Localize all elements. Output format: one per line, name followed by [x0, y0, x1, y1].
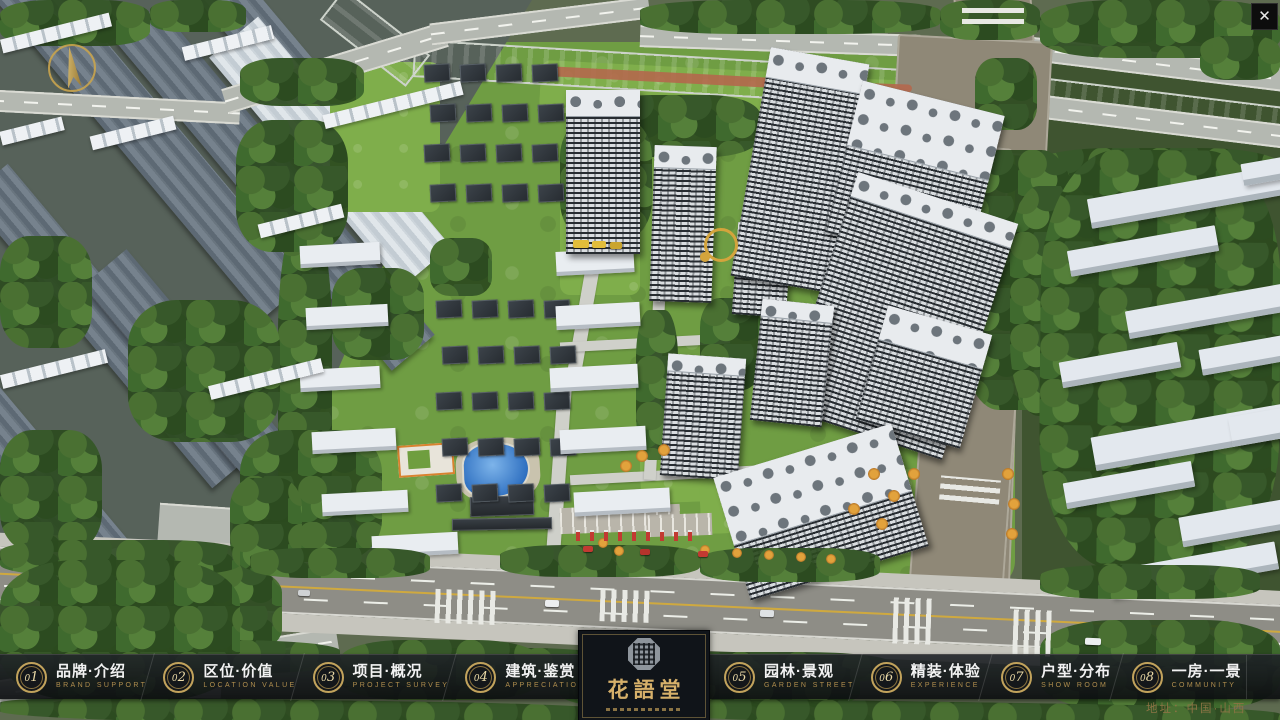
map-accent	[848, 503, 860, 515]
nav-group-right: 05 园林·景观GARDEN STREET 06 精装·体验EXPERIENCE…	[708, 655, 1280, 699]
map-tower	[649, 145, 716, 303]
nav-badge: 01	[16, 662, 47, 693]
map-tower	[566, 90, 640, 254]
map-court	[472, 391, 499, 410]
nav-badge: 03	[313, 662, 344, 693]
map-accent	[764, 550, 774, 560]
map-accent	[868, 468, 880, 480]
map-court	[436, 299, 463, 318]
map-grove	[150, 0, 246, 32]
map-court	[472, 299, 499, 318]
nav-subtitle: COMMUNITY	[1172, 682, 1242, 690]
nav-number: 03	[321, 671, 335, 684]
map-court	[478, 345, 505, 364]
nav-item-location-value[interactable]: 02 区位·价值LOCATION VALUE	[147, 655, 296, 699]
map-accent	[614, 546, 624, 556]
nav-badge: 08	[1132, 662, 1163, 693]
map-accent	[1002, 468, 1014, 480]
nav-item-room-view[interactable]: 08 一房·一景COMMUNITY	[1116, 655, 1246, 699]
map-grove2	[500, 545, 700, 577]
map-lowslab	[573, 488, 670, 517]
project-address: 地址：中国·山西	[1146, 700, 1246, 716]
map-car	[610, 242, 622, 249]
map-car	[583, 546, 593, 552]
map-flag	[646, 532, 650, 541]
map-accent	[658, 444, 670, 456]
map-car	[1085, 638, 1101, 646]
nav-badge: 07	[1001, 662, 1032, 693]
map-car	[760, 610, 774, 617]
map-court	[496, 63, 523, 82]
nav-title: 园林·景观	[764, 664, 855, 681]
map-car	[592, 241, 606, 248]
project-name-subtitle	[606, 708, 682, 711]
map-car	[640, 549, 650, 555]
map-accent	[636, 450, 648, 462]
map-grove	[0, 430, 102, 552]
map-car	[298, 590, 310, 596]
map-flag	[688, 532, 692, 541]
map-accent	[796, 552, 806, 562]
map-court	[550, 345, 577, 364]
nav-badge: 05	[724, 662, 755, 693]
map-court	[508, 483, 535, 502]
map-court	[544, 483, 571, 502]
nav-item-brand-intro[interactable]: 01 品牌·介绍BRAND SUPPORT	[0, 655, 147, 699]
map-court	[532, 143, 559, 162]
nav-group-left: 01 品牌·介绍BRAND SUPPORT 02 区位·价值LOCATION V…	[0, 655, 578, 699]
map-court	[442, 437, 469, 456]
map-lowslab	[321, 490, 408, 516]
map-court	[508, 299, 535, 318]
nav-subtitle: LOCATION VALUE	[203, 682, 296, 690]
map-court	[496, 143, 523, 162]
map-gatebldg	[452, 517, 552, 531]
nav-item-floorplan-distribution[interactable]: 07 户型·分布SHOW ROOM	[985, 655, 1115, 699]
map-zebra-v	[939, 475, 1001, 504]
nav-number: 04	[474, 671, 488, 684]
nav-badge: 04	[465, 662, 496, 693]
map-car	[545, 600, 559, 607]
project-logo-panel[interactable]: 花語堂	[578, 630, 710, 720]
map-flag	[632, 532, 636, 541]
nav-title: 精装·体验	[911, 664, 981, 681]
map-car	[698, 551, 708, 557]
map-zebra-h	[1012, 609, 1052, 656]
map-lowslab	[311, 428, 396, 454]
nav-title: 户型·分布	[1041, 664, 1111, 681]
map-accent	[1008, 498, 1020, 510]
map-grove2	[250, 548, 430, 578]
nav-subtitle: BRAND SUPPORT	[56, 682, 147, 690]
map-zebra-h	[599, 589, 650, 623]
map-court	[478, 437, 505, 456]
close-button[interactable]: ✕	[1251, 3, 1278, 30]
map-zebra-h	[434, 589, 499, 625]
map-accent	[888, 490, 900, 502]
map-lowslab	[555, 302, 640, 330]
map-grove2	[700, 548, 880, 582]
project-name: 花語堂	[603, 674, 686, 704]
map-court	[460, 143, 487, 162]
compass	[44, 40, 100, 96]
map-court	[514, 345, 541, 364]
map-flag	[660, 532, 664, 541]
map-accent	[620, 460, 632, 472]
map-court	[442, 345, 469, 364]
map-grove	[236, 120, 348, 252]
map-court	[532, 63, 559, 82]
presentation-stage: ✕ 01 品牌·介绍BRAND SUPPORT 02 区位·价值LOCATION…	[0, 0, 1280, 720]
map-zebra-h	[892, 597, 932, 644]
map-court	[430, 183, 457, 202]
map-flag	[674, 532, 678, 541]
map-court	[538, 103, 565, 122]
nav-number: 08	[1140, 671, 1154, 684]
map-lowslab	[305, 304, 388, 330]
map-tower-roof	[566, 90, 640, 117]
map-lowslab	[299, 242, 380, 268]
nav-badge: 02	[163, 662, 194, 693]
nav-title: 品牌·介绍	[56, 664, 147, 681]
map-grove2	[1040, 565, 1260, 599]
map-grove	[240, 58, 364, 106]
nav-number: 05	[732, 671, 746, 684]
nav-item-interior-experience[interactable]: 06 精装·体验EXPERIENCE	[855, 655, 985, 699]
nav-title: 一房·一景	[1172, 664, 1242, 681]
map-grove	[128, 300, 280, 442]
map-zebra-v	[962, 6, 1024, 24]
map-grove	[640, 0, 940, 34]
map-lowslab	[559, 426, 646, 454]
nav-title: 建筑·鉴赏	[505, 664, 585, 681]
map-tower-roof	[654, 145, 717, 170]
map-flag	[576, 532, 580, 541]
map-court	[472, 483, 499, 502]
map-golddot	[700, 252, 710, 262]
map-accent	[908, 468, 920, 480]
map-accent	[1006, 528, 1018, 540]
nav-tail	[1246, 655, 1280, 699]
map-court	[466, 103, 493, 122]
map-scene	[0, 0, 1280, 720]
map-court	[430, 103, 457, 122]
map-lowslab	[549, 364, 638, 393]
nav-subtitle: APPRECIATION	[505, 682, 585, 690]
map-court	[502, 183, 529, 202]
map-court	[436, 483, 463, 502]
nav-subtitle: PROJECT SURVEY	[353, 682, 450, 690]
nav-number: 02	[172, 671, 186, 684]
map-accent	[732, 548, 742, 558]
nav-item-project-survey[interactable]: 03 项目·概况PROJECT SURVEY	[297, 655, 450, 699]
nav-title: 区位·价值	[203, 664, 296, 681]
nav-subtitle: GARDEN STREET	[764, 682, 855, 690]
nav-item-architecture[interactable]: 04 建筑·鉴赏APPRECIATION	[449, 655, 585, 699]
nav-number: 06	[879, 671, 893, 684]
map-court	[544, 391, 571, 410]
nav-subtitle: EXPERIENCE	[911, 682, 981, 690]
nav-subtitle: SHOW ROOM	[1041, 682, 1111, 690]
map-court	[508, 391, 535, 410]
map-court	[460, 63, 487, 82]
map-car	[573, 240, 589, 248]
map-parking	[648, 513, 713, 537]
map-court	[466, 183, 493, 202]
nav-badge: 06	[871, 662, 902, 693]
map-tower	[660, 353, 746, 480]
map-court	[436, 391, 463, 410]
map-grove	[0, 236, 92, 348]
map-tower	[750, 299, 834, 428]
map-court	[502, 103, 529, 122]
map-court	[538, 183, 565, 202]
map-flag	[590, 532, 594, 541]
map-grove	[430, 238, 492, 296]
map-court	[514, 437, 541, 456]
map-flag	[618, 532, 622, 541]
map-grove	[1200, 36, 1280, 80]
nav-item-garden-landscape[interactable]: 05 园林·景观GARDEN STREET	[708, 655, 855, 699]
nav-number: 01	[24, 671, 38, 684]
map-flag	[604, 532, 608, 541]
nav-title: 项目·概况	[353, 664, 450, 681]
map-court	[424, 143, 451, 162]
map-court	[424, 63, 451, 82]
seal-emblem-icon	[628, 638, 660, 670]
nav-number: 07	[1010, 671, 1024, 684]
map-accent	[826, 554, 836, 564]
map-accent	[876, 518, 888, 530]
